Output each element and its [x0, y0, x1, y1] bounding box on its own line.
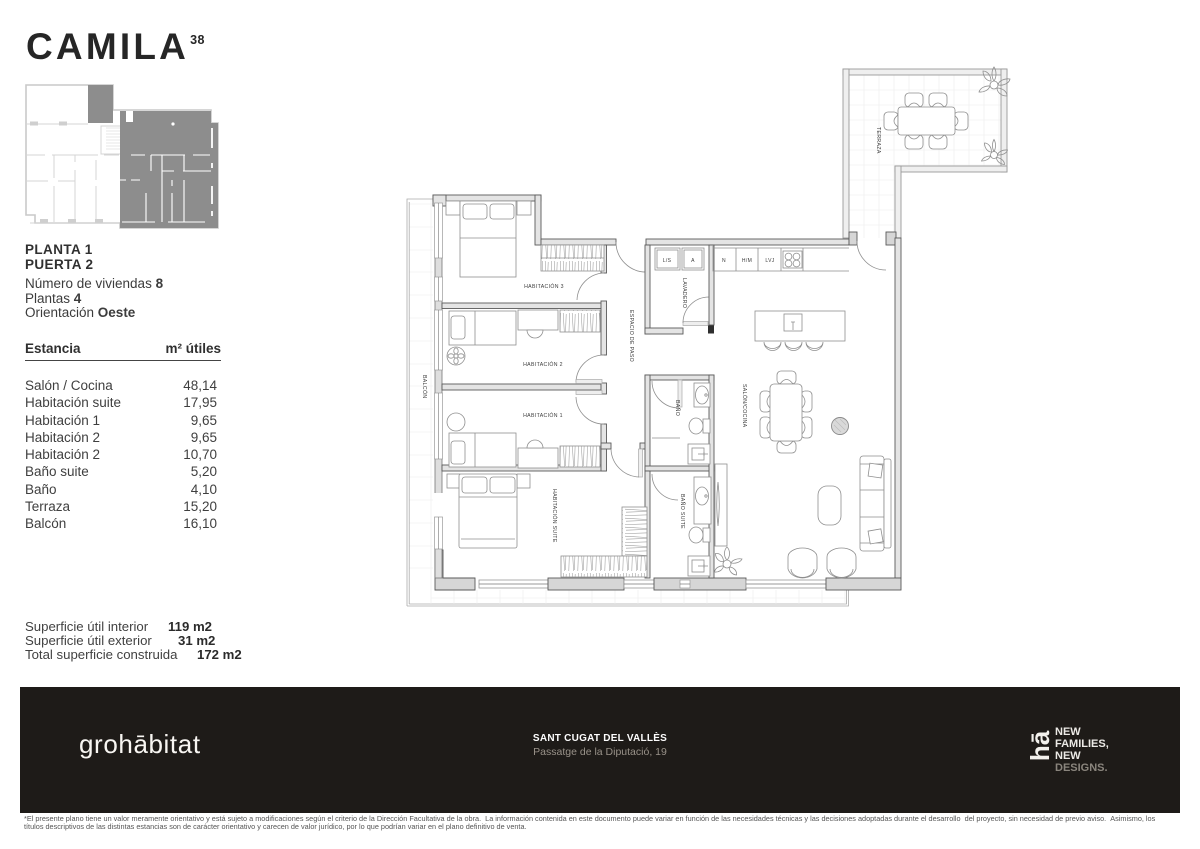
svg-text:HABITACIÓN 1: HABITACIÓN 1 — [523, 412, 563, 419]
svg-text:HABITACIÓN 3: HABITACIÓN 3 — [524, 283, 564, 290]
svg-text:LVJ: LVJ — [765, 258, 774, 264]
svg-text:ESPACIO DE PASO: ESPACIO DE PASO — [628, 310, 634, 362]
svg-text:BAÑO: BAÑO — [674, 400, 681, 416]
svg-text:H/M: H/M — [742, 258, 752, 264]
svg-text:BAÑO SUITE: BAÑO SUITE — [679, 494, 686, 529]
svg-text:SALÓN/COCINA: SALÓN/COCINA — [741, 384, 748, 428]
svg-text:HABITACIÓN SUITE: HABITACIÓN SUITE — [551, 489, 558, 543]
svg-text:HABITACIÓN 2: HABITACIÓN 2 — [523, 361, 563, 368]
svg-text:A: A — [691, 258, 695, 264]
svg-text:N: N — [722, 258, 726, 264]
svg-text:L/S: L/S — [663, 258, 672, 264]
svg-text:LAVADERO: LAVADERO — [681, 278, 687, 308]
svg-text:TERRAZA: TERRAZA — [875, 127, 881, 154]
svg-text:BALCÓN: BALCÓN — [421, 375, 428, 398]
